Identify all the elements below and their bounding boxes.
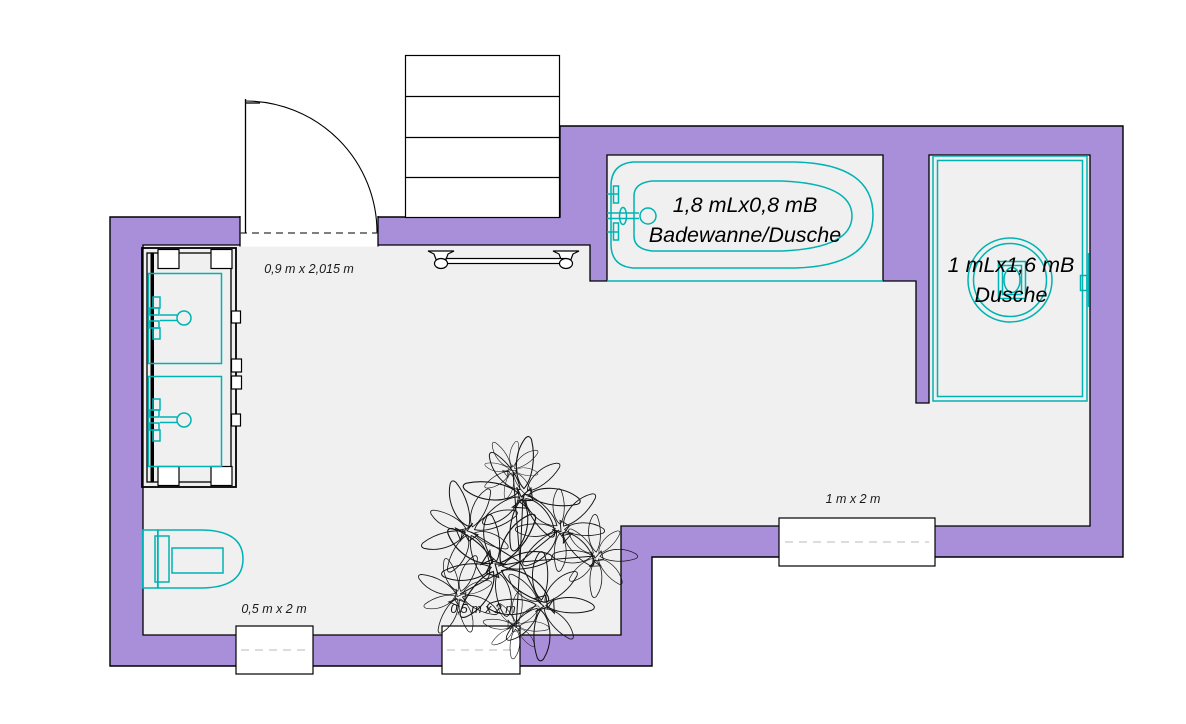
door-dimension-label: 0,9 m x 2,015 m — [264, 262, 354, 276]
shower-label-line1: 1 mLx1,6 mB — [948, 253, 1075, 278]
floor-plan: 0,9 m x 2,015 m 1,8 mLx0,8 mB Badewanne/… — [0, 0, 1186, 724]
window-left-label: 0,5 m x 2 m — [241, 602, 306, 616]
window-center-label: 0,5 m x 2 m — [450, 602, 515, 616]
labels-layer: 0,9 m x 2,015 m 1,8 mLx0,8 mB Badewanne/… — [0, 0, 1186, 724]
bathtub-label-line1: 1,8 mLx0,8 mB — [673, 193, 818, 218]
shower-label-line2: Dusche — [975, 283, 1048, 308]
window-right-label: 1 m x 2 m — [826, 492, 881, 506]
bathtub-label-line2: Badewanne/Dusche — [649, 223, 841, 248]
